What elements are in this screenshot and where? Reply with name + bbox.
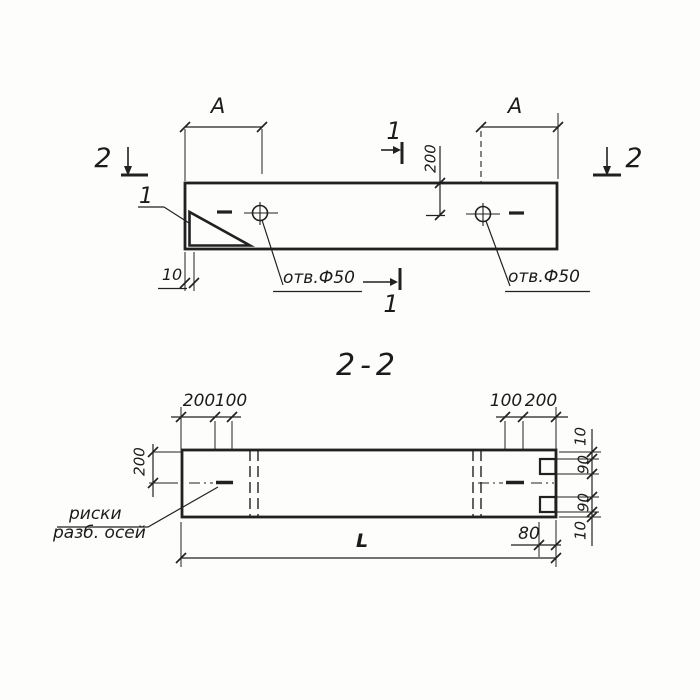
plan-section-marker-2-left xyxy=(121,147,148,176)
axis-note-line1: риски xyxy=(69,506,122,523)
section-break-lines xyxy=(250,450,481,517)
hole-label-left: отв.Ф50 xyxy=(283,270,355,287)
section-marker-2-right-label: 2 xyxy=(621,145,647,172)
drawing-canvas: 2 2 1 1 1 A A 200 10 отв.Ф50 отв.Ф50 2-2… xyxy=(0,0,700,700)
section-marker-1-top-label: 1 xyxy=(381,119,407,143)
section-dim-90-right-top-label: 90 xyxy=(577,445,592,485)
plan-detail-leader xyxy=(138,207,189,223)
section-dim-100-top-right-label: 100 xyxy=(487,393,525,410)
plan-section-marker-1-top xyxy=(381,142,402,164)
section-title: 2-2 xyxy=(336,351,400,381)
plan-dim-a-left xyxy=(180,122,267,181)
plan-dim-a-right xyxy=(476,113,563,182)
plan-dim-200-label: 200 xyxy=(424,134,439,184)
section-dim-length-label: L xyxy=(350,532,374,551)
dim-a-left-label: A xyxy=(203,96,233,117)
plan-section-marker-1-bottom xyxy=(363,268,400,290)
section-dim-top-left xyxy=(171,407,241,450)
detail-ref-label: 1 xyxy=(136,186,156,208)
plan-section-marker-2-right xyxy=(593,147,621,176)
section-dim-top-right xyxy=(496,407,568,450)
dim-a-right-label: A xyxy=(500,96,530,117)
section-dim-80-label: 80 xyxy=(514,526,544,543)
section-marker-1-bottom-label: 1 xyxy=(378,292,404,316)
axis-note-line2: разб. осей xyxy=(53,525,146,542)
hole-label-right: отв.Ф50 xyxy=(508,269,580,286)
section-dim-10-right-bottom-label: 10 xyxy=(574,511,589,551)
section-dim-left-200 xyxy=(148,444,181,497)
section-axis-marks xyxy=(189,483,554,484)
section-marker-2-left-label: 2 xyxy=(90,145,116,172)
plan-beam-outline xyxy=(185,183,557,249)
plan-dim-10-label: 10 xyxy=(157,267,187,283)
section-dim-200-side-label: 200 xyxy=(133,437,148,487)
section-dim-200-top-right-label: 200 xyxy=(521,393,561,410)
section-dim-100-top-left-label: 100 xyxy=(212,393,250,410)
